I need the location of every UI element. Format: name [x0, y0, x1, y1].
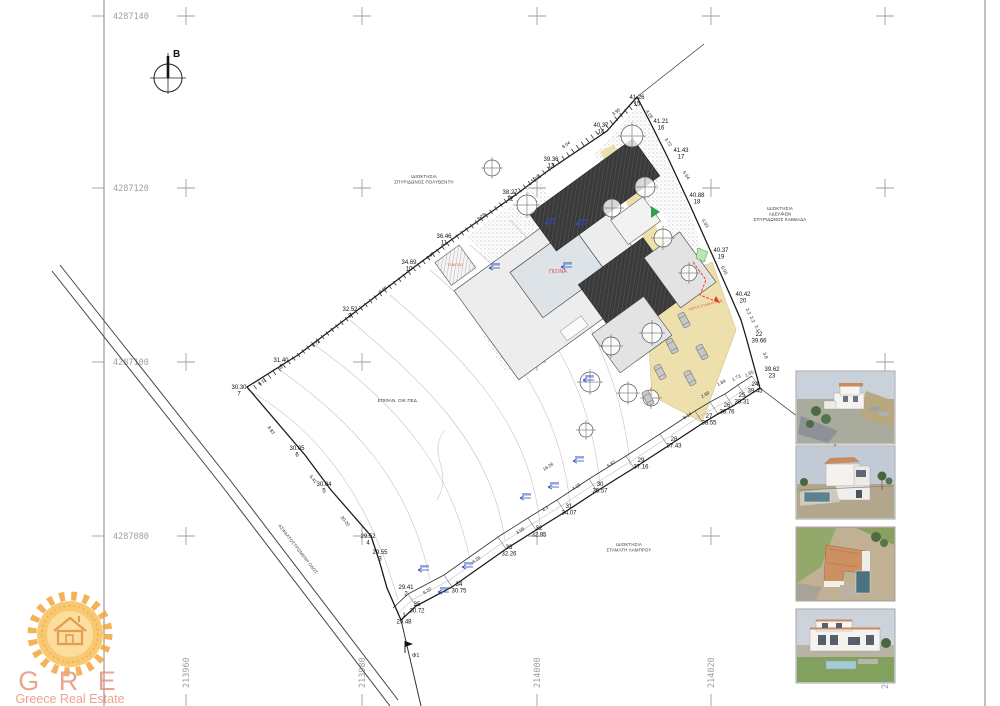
owner-label: ΙΔΙΟΚΤΗΣΙΑΑΔΕΛΦΩΝΣΠΥΡΙΔΩΝΟΣ ΚΑΒΒΑΔΑ — [754, 206, 807, 222]
grid-row-label: 4287080 — [113, 532, 149, 542]
edge-length-label: 6.11 — [257, 377, 267, 386]
svg-text:39.45: 39.45 — [747, 389, 763, 395]
spot-elevation-marker — [520, 493, 531, 500]
edge-length-label: 3.72 — [664, 137, 673, 148]
flag-label: Φ1 — [412, 653, 419, 659]
edge-length-label: 6.03 — [701, 218, 710, 229]
svg-text:29.48: 29.48 — [396, 620, 412, 626]
svg-text:38.27: 38.27 — [502, 190, 518, 196]
survey-point-label: 2539.31 — [734, 393, 750, 406]
grid-cross — [353, 7, 371, 25]
survey-point-label: 29.412 — [398, 585, 414, 598]
svg-text:34.07: 34.07 — [561, 511, 577, 517]
svg-text:30.30: 30.30 — [231, 385, 247, 391]
svg-text:34.69: 34.69 — [401, 260, 417, 266]
svg-text:36.46: 36.46 — [436, 234, 452, 240]
edge-length-label: 8.04 — [561, 140, 572, 150]
edge-length-label: 16.26 — [542, 461, 555, 472]
survey-point-label: 40.3719 — [713, 248, 729, 261]
grid-cross — [702, 7, 720, 25]
survey-point-label: 3232.95 — [531, 526, 547, 539]
photo3-pool — [856, 571, 870, 593]
svg-text:33: 33 — [506, 545, 513, 551]
grid-cross — [702, 527, 720, 545]
survey-point-label: 39.6223 — [764, 367, 780, 380]
svg-text:14: 14 — [598, 130, 605, 136]
edge-length-label: 1.73 — [731, 373, 742, 382]
svg-text:34: 34 — [456, 582, 463, 588]
photo1-house — [834, 393, 864, 409]
svg-text:40.42: 40.42 — [735, 292, 751, 298]
svg-text:8: 8 — [279, 365, 283, 371]
render-photo-3 — [796, 527, 895, 601]
photo4-pool — [826, 661, 856, 669]
svg-text:39.66: 39.66 — [751, 339, 767, 345]
svg-text:32.52: 32.52 — [342, 307, 358, 313]
svg-text:39.36: 39.36 — [543, 157, 559, 163]
north-arrow: B — [150, 49, 186, 94]
survey-point-label: 3530.72 — [409, 602, 425, 615]
plan-drawing: 4287140428712042871004287080213960213980… — [0, 0, 1000, 706]
grid-cross — [876, 353, 894, 371]
edge-length-label: 20-20 — [340, 515, 351, 528]
grid-col-label-partial: 2 — [881, 684, 891, 689]
tree-icon — [576, 420, 596, 440]
grid-cross — [177, 353, 195, 371]
svg-text:4: 4 — [366, 541, 370, 547]
grid-cross — [177, 179, 195, 197]
svg-text:30.75: 30.75 — [451, 589, 467, 595]
edge-length-label: 8.83 — [266, 425, 276, 435]
svg-text:30.04: 30.04 — [316, 482, 332, 488]
svg-text:13: 13 — [548, 164, 555, 170]
survey-point-label: 39.3613 — [543, 157, 559, 170]
edge-length-label: 9.74 — [311, 339, 322, 349]
svg-text:32.26: 32.26 — [501, 552, 517, 558]
svg-text:26: 26 — [724, 403, 731, 409]
company-logo: G R E Greece Real Estate — [15, 596, 124, 706]
grid-cross — [528, 7, 546, 25]
svg-text:23: 23 — [769, 374, 776, 380]
svg-text:22: 22 — [756, 332, 763, 338]
svg-text:38.76: 38.76 — [719, 410, 735, 416]
survey-point-label: 40.4220 — [735, 292, 751, 305]
grid-row-label: 4287120 — [113, 184, 149, 194]
tree-icon — [616, 381, 640, 405]
survey-point-label: 2239.66 — [751, 332, 767, 345]
svg-text:35.57: 35.57 — [592, 489, 608, 495]
svg-text:3: 3 — [378, 557, 382, 563]
svg-text:7: 7 — [237, 392, 241, 398]
grid-col-label: 214000 — [533, 657, 543, 688]
svg-text:27: 27 — [706, 414, 713, 420]
site-plan-sheet: 4287140428712042871004287080213960213980… — [0, 0, 1000, 706]
tree-icon — [577, 369, 603, 395]
jacuzzi-label: ΤΖΑΚΟΥΖΙ — [447, 263, 462, 267]
grid-coordinate-labels: 4287140428712042871004287080213960213980… — [92, 12, 891, 706]
survey-point-label: 41.4317 — [673, 148, 689, 161]
svg-text:29.41: 29.41 — [398, 585, 414, 591]
survey-point-label: 3430.75 — [451, 582, 467, 595]
svg-text:29: 29 — [638, 458, 645, 464]
svg-text:16: 16 — [658, 126, 665, 132]
svg-text:25: 25 — [739, 393, 746, 399]
grid-cross — [876, 7, 894, 25]
survey-point-label: 3332.26 — [501, 545, 517, 558]
grid-row-label: 4287100 — [113, 358, 149, 368]
spot-elevation-marker — [548, 482, 559, 489]
svg-text:20: 20 — [740, 299, 747, 305]
sun-house-icon — [32, 596, 108, 672]
owner-label: ΙΔΙΟΚΤΗΣΙΑΣΤΑΜΑΤΗ ΛΑΜΠΡΟΥ — [607, 542, 652, 552]
survey-point-label: 29.553 — [372, 550, 388, 563]
svg-text:28: 28 — [671, 437, 678, 443]
grid-row-label: 4287140 — [113, 12, 149, 22]
survey-point-label: 2638.76 — [719, 403, 735, 416]
edge-length-label: 3.8 — [762, 352, 769, 360]
svg-text:32.95: 32.95 — [531, 533, 547, 539]
survey-point-label: 41.2116 — [653, 119, 669, 132]
north-label: B — [173, 49, 180, 60]
plot-area-label: ΕΠΙΦΑΝ. ΟΙΚ.ΠΕΔ. — [378, 398, 419, 403]
edge-length-label: 3.95 — [611, 107, 622, 117]
spot-elevation-marker — [438, 587, 449, 594]
svg-text:17: 17 — [678, 155, 685, 161]
svg-text:10: 10 — [406, 267, 413, 273]
svg-text:41.26: 41.26 — [629, 95, 645, 101]
edge-length-label: 1.65 — [744, 369, 755, 378]
svg-text:31.40: 31.40 — [273, 358, 289, 364]
svg-text:5: 5 — [322, 489, 326, 495]
edge-length-label: 2.2 — [745, 307, 752, 315]
edge-length-label: 4.18 — [571, 482, 582, 491]
svg-text:32: 32 — [536, 526, 543, 532]
edge-length-label: 6.20 — [422, 586, 433, 595]
photo2-pool — [804, 492, 830, 502]
svg-text:41.21: 41.21 — [653, 119, 669, 125]
svg-text:37.16: 37.16 — [633, 465, 649, 471]
survey-point-label: 30.307 — [231, 385, 247, 398]
svg-text:29.55: 29.55 — [372, 550, 388, 556]
svg-text:39.31: 39.31 — [734, 400, 750, 406]
edge-length-label: 2.2 — [749, 315, 756, 323]
grid-cross — [353, 179, 371, 197]
svg-text:38.55: 38.55 — [701, 421, 717, 427]
svg-text:40.37: 40.37 — [593, 123, 609, 129]
grid-cross — [177, 7, 195, 25]
grid-cross — [177, 527, 195, 545]
svg-text:30.72: 30.72 — [409, 609, 425, 615]
survey-point-label: 2439.45 — [747, 382, 763, 395]
owner-label: ΙΔΙΟΚΤΗΣΙΑΣΠΥΡΙΔΩΝΟΣ ΠΟΛΥΒΕΝΤΗ — [394, 174, 453, 184]
svg-text:30: 30 — [597, 482, 604, 488]
svg-text:31: 31 — [566, 504, 573, 510]
svg-text:40.37: 40.37 — [713, 248, 729, 254]
svg-text:37.43: 37.43 — [666, 444, 682, 450]
svg-text:29.52: 29.52 — [360, 534, 376, 540]
grid-cross — [353, 353, 371, 371]
svg-text:24: 24 — [752, 382, 759, 388]
svg-text:18: 18 — [694, 200, 701, 206]
render-photo-2 — [796, 446, 895, 519]
svg-text:6: 6 — [295, 453, 299, 459]
svg-text:30.05: 30.05 — [289, 446, 305, 452]
survey-point-label: 32.529 — [342, 307, 358, 320]
svg-text:35: 35 — [414, 602, 421, 608]
edge-length-label: 4.28 — [471, 555, 482, 564]
survey-point-label: 40.8818 — [689, 193, 705, 206]
pool-label: ΠΙΣΙΝΑ — [549, 269, 567, 275]
grid-cross — [702, 179, 720, 197]
grid-col-label: 214020 — [707, 657, 717, 688]
render-photo-4 — [796, 609, 895, 683]
grid-cross — [876, 179, 894, 197]
spot-elevation-marker — [573, 456, 584, 463]
svg-text:40.88: 40.88 — [689, 193, 705, 199]
svg-text:41.43: 41.43 — [673, 148, 689, 154]
edge-length-label: 5.64 — [682, 170, 691, 181]
render-photo-1 — [796, 371, 895, 444]
svg-text:39.62: 39.62 — [764, 367, 780, 373]
grid-col-label: 213980 — [358, 657, 368, 688]
edge-length-label: 6.82 — [606, 459, 617, 468]
flag-phi1: Φ1 — [405, 641, 419, 659]
svg-text:11: 11 — [441, 241, 448, 247]
logo-subtitle: Greece Real Estate — [15, 692, 124, 706]
svg-text:15: 15 — [634, 102, 641, 108]
edge-length-label: 3.08 — [515, 526, 526, 535]
spot-elevation-marker — [462, 562, 473, 569]
tree-icon — [481, 157, 503, 179]
survey-point-label: 41.2615 — [629, 95, 645, 108]
grid-col-label: 213960 — [182, 657, 192, 688]
svg-text:19: 19 — [718, 255, 725, 261]
edge-length-label: 9.55 — [378, 285, 389, 295]
svg-text:12: 12 — [507, 197, 514, 203]
survey-point-label: 40.3714 — [593, 123, 609, 136]
